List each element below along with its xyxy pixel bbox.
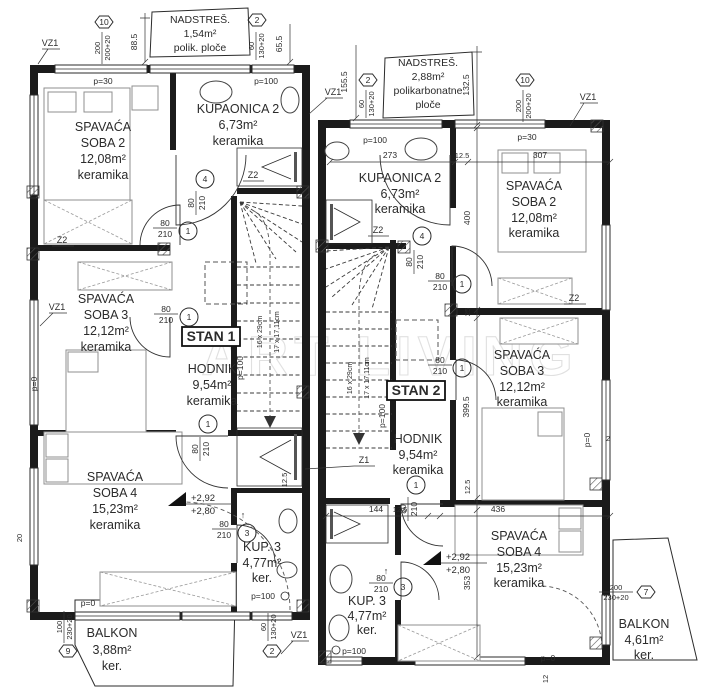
stan1-label: STAN 1 [187, 328, 236, 344]
window-s2-top-kup [350, 120, 442, 128]
p100-s1-stair: p=100 [235, 356, 245, 380]
svg-text:60: 60 [259, 623, 268, 631]
s1-soba3-name2: SOBA 3 [84, 308, 129, 322]
svg-text:80: 80 [160, 218, 170, 228]
p100-s2-top: p=100 [363, 135, 387, 145]
dim-144: 144 [369, 504, 383, 514]
svg-text:200: 200 [514, 100, 523, 113]
s1-hodnik-area: 9,54m² [193, 378, 232, 392]
entry-s1 [150, 65, 250, 73]
s2-soba4-name1: SPAVAĆA [491, 528, 548, 543]
door-mark-s1-1c: 1 80210 [190, 415, 217, 461]
s1-kup3-floor: ker. [252, 571, 272, 585]
svg-text:80: 80 [404, 257, 414, 267]
dim-20: 20 [15, 534, 24, 542]
z1-s1-kup3: Z1 [305, 455, 375, 469]
dim-65-5: 65.5 [274, 35, 284, 52]
svg-text:3: 3 [245, 528, 250, 538]
up-arrow-s1: ↑ [241, 510, 246, 520]
p30-s1-top: p=30 [93, 76, 112, 86]
p0-s1-left: p=0 [29, 377, 39, 392]
svg-text:VZ1: VZ1 [49, 302, 66, 312]
svg-text:Z1: Z1 [359, 455, 370, 465]
dim-400: 400 [462, 211, 472, 225]
p0-s1-bottom: p=0 [81, 598, 96, 608]
svg-text:200: 200 [93, 42, 102, 55]
vz1-s1-right: VZ1 [309, 87, 343, 114]
dim-12: 12 [541, 675, 550, 683]
s2-soba4-name2: SOBA 4 [497, 545, 542, 559]
svg-text:p=100: p=100 [342, 646, 366, 656]
shower-s1-kupaonica2 [237, 148, 302, 186]
bed-s2-soba3 [482, 408, 564, 500]
wardrobe-s2-soba3 [500, 318, 578, 344]
window-s1-left-soba2 [30, 95, 38, 195]
svg-text:210: 210 [409, 502, 419, 516]
p100-s2-kup3: p=100 [332, 646, 366, 656]
canopy2-material1: polikarbonatne [394, 85, 463, 97]
window-s2-right-soba2 [602, 225, 610, 310]
svg-text:230+20: 230+20 [65, 614, 74, 639]
svg-text:80: 80 [219, 519, 229, 529]
window-s1-top-kup [252, 65, 294, 73]
s2-balkon-area: 4,61m² [625, 633, 664, 647]
s1-soba4-name1: SPAVAĆA [87, 469, 144, 484]
svg-text:200+20: 200+20 [103, 35, 112, 60]
p100-s2-stair: p=100 [377, 404, 387, 428]
s2-balkon-name: BALKON [619, 617, 670, 631]
svg-text:VZ1: VZ1 [291, 630, 308, 640]
up-arrow-s2: ↑ [384, 566, 389, 576]
dim-12-5-v: 12.5 [463, 480, 472, 495]
window-s2-right-soba3 [602, 380, 610, 480]
p100-s1-top: p=100 [254, 76, 278, 86]
svg-text:230+20: 230+20 [603, 593, 628, 602]
s2-hodnik-floor: keramika [393, 463, 444, 477]
s2-kup3-floor: ker. [357, 623, 377, 637]
dim-273: 273 [383, 150, 397, 160]
hex-2-mid: 2 [359, 74, 377, 86]
dim-12-5-s1: 12.5 [280, 473, 289, 488]
s1-soba3-area: 12,12m² [83, 324, 129, 338]
s1-kup2-area: 6,73m² [219, 118, 258, 132]
s2-soba3-name2: SOBA 3 [500, 364, 545, 378]
wardrobe-s1-soba4 [100, 572, 236, 606]
s1-soba4-floor: keramika [90, 518, 141, 532]
dim-399-5: 399.5 [461, 396, 471, 418]
s2-soba2-area: 12,08m² [511, 211, 557, 225]
s1-soba4-name2: SOBA 4 [93, 486, 138, 500]
canopy2-material2: ploče [415, 99, 440, 111]
svg-text:2: 2 [270, 646, 275, 656]
balcony-door-s2 [602, 595, 610, 645]
vz1-top-left: VZ1 [38, 38, 60, 64]
door-s2-kup3 [401, 562, 439, 600]
p30-s2-top: p=30 [517, 132, 536, 142]
door-mark-s1-4: 4 80210 [186, 170, 214, 215]
svg-text:1: 1 [187, 312, 192, 322]
stan2-label: STAN 2 [392, 382, 441, 398]
canopy1-name: NADSTREŠ. [170, 13, 230, 26]
s1-soba3-floor: keramika [81, 340, 132, 354]
shower-s1-kup3 [237, 428, 302, 486]
svg-text:210: 210 [158, 229, 172, 239]
s1-soba3-name1: SPAVAĆA [78, 291, 135, 306]
dim-132-5: 132.5 [461, 74, 471, 96]
toilet-s2-kup3 [329, 615, 349, 641]
svg-text:80: 80 [190, 444, 200, 454]
window-s1-bottom [75, 612, 180, 620]
s1-balkon-area: 3,88m² [93, 643, 132, 657]
s1-hodnik-floor: keramika [187, 394, 238, 408]
canopy2-area: 2,88m² [412, 71, 445, 83]
svg-text:9: 9 [66, 646, 71, 656]
svg-text:7: 7 [644, 587, 649, 597]
level-marker-stan1: +2,92 +2,80 [168, 492, 232, 517]
svg-text:210: 210 [197, 196, 207, 210]
dim-307: 307 [533, 150, 547, 160]
svg-text:210: 210 [433, 366, 447, 376]
s1-soba4-area: 15,23m² [92, 502, 138, 516]
canopy1-area: 1,54m² [184, 28, 217, 40]
door-mark-s2-1a: 1 80210 [428, 271, 471, 293]
s1-soba2-area: 12,08m² [80, 152, 126, 166]
svg-text:60: 60 [247, 42, 256, 50]
floorplan-drawing: ART LIVING NADSTREŠ. 1,54m² polik. ploče… [0, 0, 701, 690]
stairs1-spec1: 16 x 29cm [257, 316, 264, 348]
s2-soba2-name2: SOBA 2 [512, 195, 557, 209]
svg-text:210: 210 [217, 530, 231, 540]
s2-soba4-floor: keramika [494, 576, 545, 590]
svg-text:10: 10 [520, 75, 530, 85]
vz1-s1-left: VZ1 [40, 302, 67, 326]
nightstand-s1-soba2 [132, 86, 158, 110]
s1-soba2-name1: SPAVAĆA [75, 119, 132, 134]
svg-text:1: 1 [460, 363, 465, 373]
hex-10-left: 10 [95, 16, 113, 28]
canopy1-material: polik. ploče [174, 42, 227, 54]
s1-balkon-floor: ker. [102, 659, 122, 673]
toilet-s1-kup3 [279, 509, 297, 533]
hex-7-balcony: 7 [637, 586, 655, 598]
s1-balkon-name: BALKON [87, 626, 138, 640]
svg-text:100: 100 [55, 621, 64, 634]
stairs2-spec1: 16 x 29cm [347, 362, 354, 394]
svg-text:2: 2 [255, 15, 260, 25]
dim-2: 2 [606, 434, 610, 443]
svg-text:130+20: 130+20 [257, 33, 266, 58]
s2-soba2-name1: SPAVAĆA [506, 178, 563, 193]
svg-text:10: 10 [99, 17, 109, 27]
svg-text:130+20: 130+20 [367, 91, 376, 116]
ceiling-void-1 [205, 262, 247, 304]
dim-436: 436 [491, 504, 505, 514]
s2-level-lower: +2,80 [446, 565, 470, 576]
svg-text:200: 200 [610, 583, 623, 592]
s2-hodnik-area: 9,54m² [399, 448, 438, 462]
floorplan-canvas: ART LIVING NADSTREŠ. 1,54m² polik. ploče… [0, 0, 701, 690]
svg-text:p=100: p=100 [251, 591, 275, 601]
wardrobe-s2-soba4 [398, 625, 480, 661]
dim-12-5-mid: 12.5 [393, 505, 408, 514]
s2-soba3-name1: SPAVAĆA [494, 347, 551, 362]
s2-hodnik-name: HODNIK [394, 432, 443, 446]
s1-soba2-name2: SOBA 2 [81, 136, 126, 150]
window-s2-top-soba2 [455, 120, 545, 128]
stairs2-spec2: 17 x 17,11cm [364, 357, 371, 399]
svg-text:Z2: Z2 [57, 235, 68, 245]
svg-text:80: 80 [435, 271, 445, 281]
s1-hodnik-name: HODNIK [188, 362, 237, 376]
svg-text:210: 210 [159, 315, 173, 325]
s2-balkon-floor: ker. [634, 648, 654, 662]
s2-kup2-floor: keramika [375, 202, 426, 216]
svg-text:Z2: Z2 [373, 225, 384, 235]
svg-text:2: 2 [366, 75, 371, 85]
sink-s1-kupaonica2 [200, 81, 232, 103]
svg-text:4: 4 [420, 231, 425, 241]
vz1-s1-bottom: VZ1 [281, 630, 309, 654]
svg-text:VZ1: VZ1 [325, 87, 342, 97]
s2-soba2-floor: keramika [509, 226, 560, 240]
svg-text:80: 80 [161, 304, 171, 314]
svg-text:VZ1: VZ1 [42, 38, 59, 48]
door-mark-s2-3: 3 80210 ↑ [369, 566, 412, 596]
window-s1-top-soba2 [55, 65, 147, 73]
dim-25: 25 [463, 308, 472, 316]
window-s1-left-soba3 [30, 300, 38, 425]
svg-text:Z2: Z2 [248, 170, 259, 180]
s2-kup2-area: 6,73m² [381, 187, 420, 201]
door-mark-s1-1a: 1 80210 [153, 218, 197, 240]
svg-text:3: 3 [401, 582, 406, 592]
hex-2-left: 2 [248, 14, 266, 26]
s2-soba4-area: 15,23m² [496, 561, 542, 575]
s2-level-upper: +2,92 [446, 552, 470, 563]
s1-kup3-area: 4,77m² [243, 556, 282, 570]
svg-text:80: 80 [435, 355, 445, 365]
canopy-stan1: NADSTREŠ. 1,54m² polik. ploče [150, 8, 250, 57]
hex-2-bottom: 2 [263, 645, 281, 657]
svg-text:210: 210 [415, 255, 425, 269]
p0-s2-right: p=0 [582, 433, 592, 448]
s2-kup3-name: KUP. 3 [348, 594, 386, 608]
hex-10-right: 10 [516, 74, 534, 86]
z2-s2-bath: Z2 [368, 225, 389, 236]
svg-text:1: 1 [186, 226, 191, 236]
s2-kup2-name: KUPAONICA 2 [359, 171, 441, 185]
sink-s2-kup3 [330, 565, 352, 593]
s1-soba2-floor: keramika [78, 168, 129, 182]
toilet-s1-kupaonica2 [281, 87, 299, 113]
door-mark-s2-1c: 1 80210 [398, 476, 425, 521]
wardrobe-s2-soba2 [498, 278, 572, 304]
canopy2-name: NADSTREŠ. [398, 56, 458, 69]
svg-text:1: 1 [460, 279, 465, 289]
p100-s1-kup3: p=100 [251, 591, 289, 601]
wardrobe-s1-soba3 [78, 262, 172, 290]
dim-12-5-top: 12.5 [455, 151, 470, 160]
door-s2-soba2 [452, 246, 492, 286]
s1-kup2-name: KUPAONICA 2 [197, 102, 279, 116]
svg-text:200+20: 200+20 [524, 93, 533, 118]
hex-9-bottom: 9 [59, 645, 77, 657]
s1-level-upper: +2,92 [191, 493, 215, 504]
z2-s1-bath: Z2 [243, 170, 264, 181]
dim-88-5: 88.5 [129, 33, 139, 50]
s1-level-lower: +2,80 [191, 506, 215, 517]
svg-text:80: 80 [186, 198, 196, 208]
svg-text:210: 210 [374, 584, 388, 594]
shower-s2-kupaonica2 [326, 200, 372, 244]
door-mark-s1-1b: 1 80210 [154, 304, 198, 326]
svg-text:210: 210 [201, 442, 211, 456]
s2-soba3-floor: keramika [497, 395, 548, 409]
svg-text:1: 1 [414, 480, 419, 490]
s1-kup2-floor: keramika [213, 134, 264, 148]
svg-text:1: 1 [206, 419, 211, 429]
stairs1-spec2: 17 x 17,11cm [274, 311, 281, 353]
s2-soba3-area: 12,12m² [499, 380, 545, 394]
dim-353: 353 [462, 576, 472, 590]
sink-s2-kupaonica2 [405, 138, 437, 160]
svg-text:130+20: 130+20 [269, 614, 278, 639]
window-s1-left-soba4 [30, 468, 38, 565]
svg-text:210: 210 [433, 282, 447, 292]
p0-s2-bottom: p=0 [541, 653, 556, 663]
svg-text:VZ1: VZ1 [580, 92, 597, 102]
s2-kup3-area: 4,77m² [348, 609, 387, 623]
balcony-door-s1 [182, 612, 250, 620]
toilet-s2-kupaonica2 [325, 142, 349, 160]
svg-text:4: 4 [203, 174, 208, 184]
svg-text:60: 60 [357, 100, 366, 108]
svg-text:Z2: Z2 [569, 293, 580, 303]
